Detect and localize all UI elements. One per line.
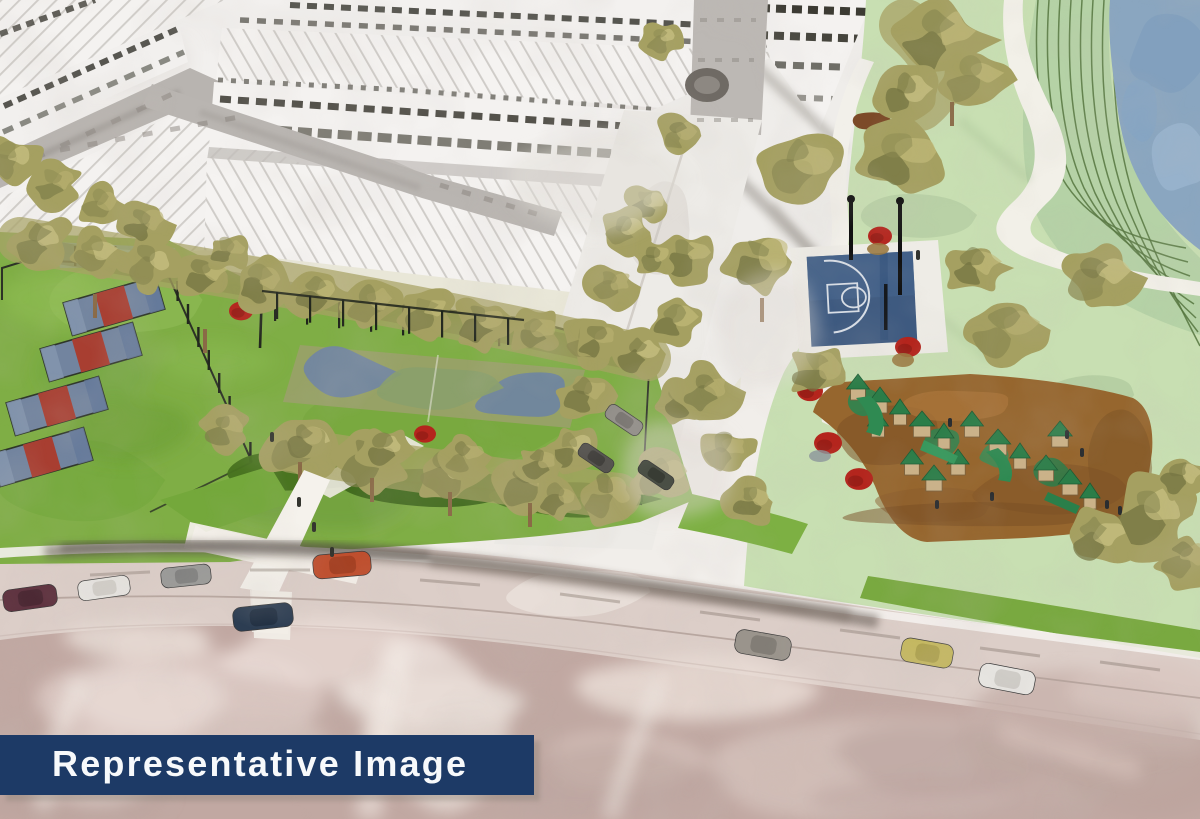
svg-text:Representative Image: Representative Image [52, 743, 468, 784]
